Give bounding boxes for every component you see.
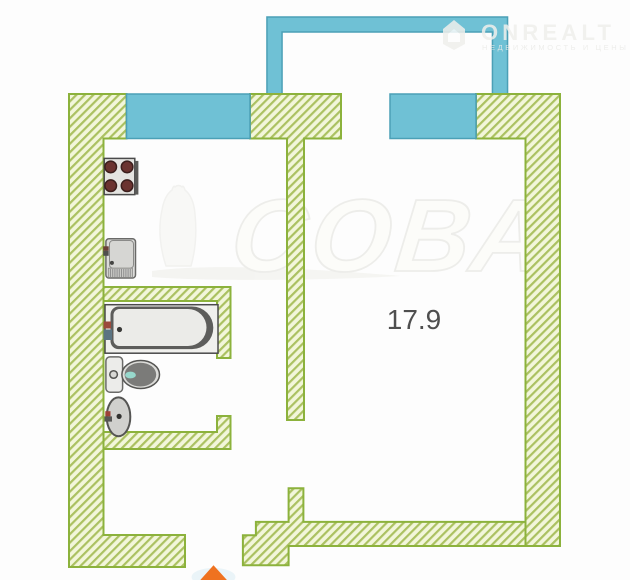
svg-text:ONREALT: ONREALT — [481, 20, 615, 45]
svg-text:СОВА: СОВА — [226, 178, 557, 293]
svg-text:17.9: 17.9 — [387, 304, 442, 335]
svg-text:НЕДВИЖИМОСТЬ И ЦЕНЫ: НЕДВИЖИМОСТЬ И ЦЕНЫ — [482, 43, 629, 52]
